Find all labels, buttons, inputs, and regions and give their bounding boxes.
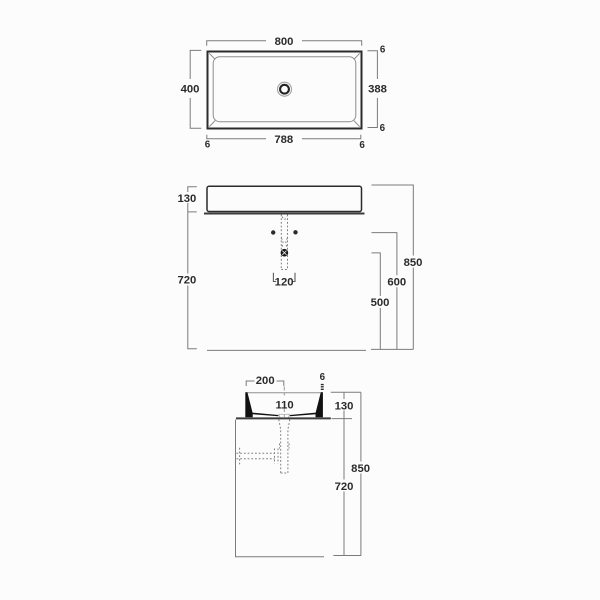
svg-text:130: 130 — [335, 400, 354, 412]
svg-text:6: 6 — [320, 372, 326, 383]
svg-text:6: 6 — [359, 140, 365, 151]
svg-text:6: 6 — [380, 123, 386, 134]
svg-text:200: 200 — [256, 375, 275, 387]
svg-text:400: 400 — [181, 84, 200, 96]
svg-text:130: 130 — [177, 193, 196, 205]
svg-text:850: 850 — [404, 257, 423, 269]
svg-text:388: 388 — [368, 84, 387, 96]
svg-text:720: 720 — [177, 275, 196, 287]
svg-text:6: 6 — [380, 44, 386, 55]
svg-text:600: 600 — [387, 277, 406, 289]
svg-text:500: 500 — [371, 297, 390, 309]
svg-text:788: 788 — [274, 134, 293, 146]
svg-text:6: 6 — [205, 140, 211, 151]
svg-text:850: 850 — [351, 463, 370, 475]
svg-text:120: 120 — [275, 277, 294, 289]
svg-text:110: 110 — [275, 400, 293, 412]
svg-text:720: 720 — [335, 481, 354, 493]
svg-text:800: 800 — [275, 36, 294, 48]
